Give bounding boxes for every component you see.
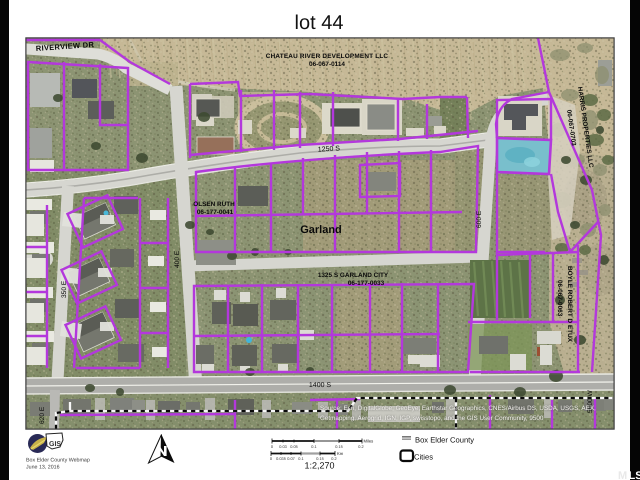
svg-text:Box Elder County Webmap: Box Elder County Webmap [26, 458, 90, 464]
svg-text:1400 S: 1400 S [309, 382, 332, 389]
svg-text:0.1: 0.1 [298, 456, 303, 461]
svg-text:Miles: Miles [364, 439, 374, 444]
svg-text:0.2: 0.2 [358, 444, 363, 449]
svg-text:06-067-0063: 06-067-0063 [556, 280, 563, 317]
svg-text:06-177-0041: 06-177-0041 [197, 209, 234, 216]
svg-text:400 E: 400 E [174, 250, 181, 268]
svg-text:Getmapping, Aerogrid, IGN, IGP: Getmapping, Aerogrid, IGN, IGP, swisstop… [320, 415, 544, 422]
svg-text:June 13, 2016: June 13, 2016 [26, 465, 60, 471]
svg-text:M: M [618, 470, 627, 480]
svg-text:Box Elder County: Box Elder County [415, 436, 474, 445]
svg-text:350 E: 350 E [61, 280, 68, 298]
svg-text:0.05: 0.05 [290, 444, 298, 449]
svg-text:1250 S: 1250 S [318, 145, 341, 153]
svg-text:Garland: Garland [300, 224, 342, 236]
svg-text:0.07: 0.07 [287, 456, 295, 461]
svg-text:Cities: Cities [414, 453, 433, 462]
svg-text:CHATEAU RIVER DEVELOPMENT LLC: CHATEAU RIVER DEVELOPMENT LLC [266, 53, 389, 60]
svg-text:Source: Esri, DigitalGlobe, Ge: Source: Esri, DigitalGlobe, GeoEye, Eart… [320, 405, 596, 412]
svg-text:600 E: 600 E [476, 210, 483, 228]
svg-text:0.1: 0.1 [311, 444, 316, 449]
svg-text:OLSEN RUTH: OLSEN RUTH [193, 201, 235, 208]
svg-text:lot 44: lot 44 [295, 12, 344, 34]
svg-text:Km: Km [337, 451, 344, 456]
svg-text:06-067-0114: 06-067-0114 [309, 61, 345, 68]
svg-text:0.15: 0.15 [335, 444, 343, 449]
svg-text:1:2,270: 1:2,270 [304, 461, 334, 471]
svg-text:BOYLE ROBERT D ETUX: BOYLE ROBERT D ETUX [566, 266, 573, 343]
svg-text:GIS: GIS [49, 441, 61, 448]
svg-text:0.035: 0.035 [276, 456, 286, 461]
svg-text:620 E: 620 E [39, 406, 46, 424]
svg-text:0.03: 0.03 [279, 444, 287, 449]
svg-text:06-177-0033: 06-177-0033 [348, 280, 385, 287]
svg-text:1325 S GARLAND CITY: 1325 S GARLAND CITY [318, 272, 389, 279]
svg-text:LS: LS [629, 470, 640, 480]
